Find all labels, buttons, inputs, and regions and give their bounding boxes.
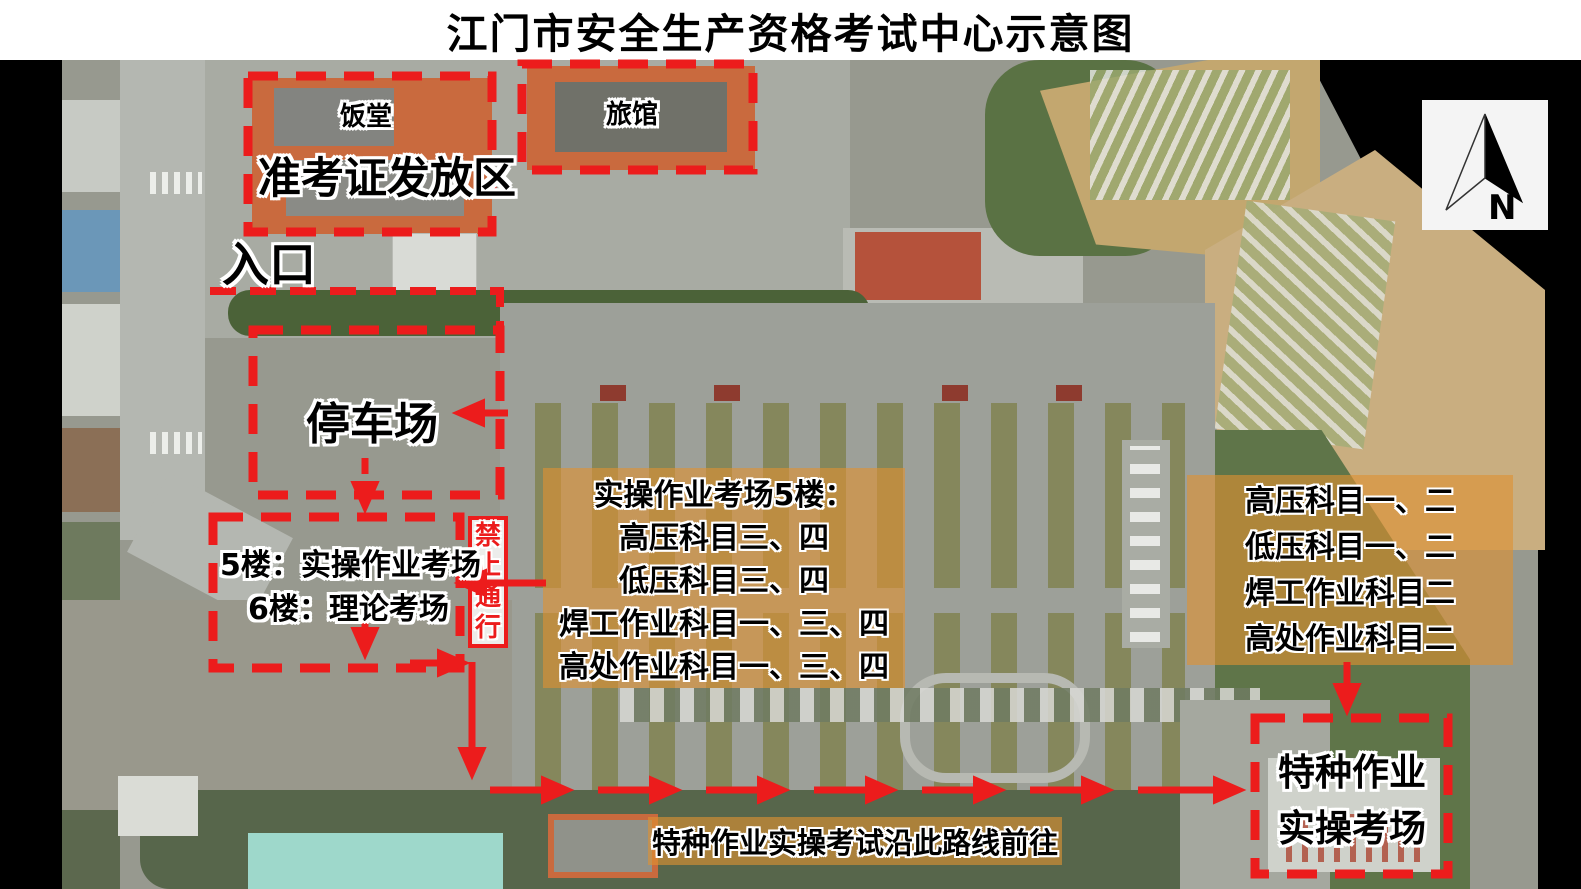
board-line: 焊工作业科目二	[1187, 571, 1513, 617]
map-schematic: 江门市安全生产资格考试中心示意图	[0, 0, 1581, 889]
compass-north-label: N	[1488, 188, 1516, 228]
pond	[248, 833, 503, 889]
photo-feature	[1090, 70, 1290, 200]
board-line: 实操作业考场5楼：	[543, 474, 905, 517]
photo-feature	[1215, 201, 1396, 450]
right-info-board: 高压科目一、二 低压科目一、二 焊工作业科目二 高处作业科目二	[1187, 475, 1513, 665]
label-canteen: 饭堂	[340, 96, 392, 133]
board-line: 低压科目一、二	[1187, 525, 1513, 571]
label-ticket-issue-area: 准考证发放区	[258, 144, 516, 206]
label-entrance: 入口	[222, 226, 316, 295]
photo-feature	[855, 232, 981, 300]
label-parking: 停车场	[306, 388, 438, 452]
title-bar: 江门市安全生产资格考试中心示意图	[0, 0, 1581, 60]
photo-feature	[120, 60, 205, 540]
photo-feature	[942, 385, 968, 401]
photo-feature	[548, 814, 658, 878]
photo-feature	[150, 172, 202, 194]
photo-feature	[62, 210, 120, 292]
board-line: 高压科目三、四	[543, 517, 905, 560]
route-note-text: 特种作业实操考试沿此路线前往	[652, 820, 1058, 862]
board-line: 高处作业科目二	[1187, 617, 1513, 663]
photo-feature	[62, 304, 120, 416]
photo-feature	[1130, 446, 1160, 642]
board-line: 焊工作业科目一、三、四	[543, 603, 905, 646]
page-title: 江门市安全生产资格考试中心示意图	[447, 0, 1135, 60]
route-note-strip: 特种作业实操考试沿此路线前往	[648, 817, 1062, 865]
photo-feature	[620, 688, 1260, 722]
photo-feature	[1056, 385, 1082, 401]
compass: N	[1422, 100, 1548, 230]
label-special-site-line2: 实操考场	[1268, 798, 1436, 852]
photo-feature	[0, 60, 62, 889]
photo-feature	[714, 385, 740, 401]
label-exam-building-f5: 5楼：实操作业考场	[220, 540, 481, 584]
label-exam-building-f6: 6楼：理论考场	[248, 584, 449, 628]
board-line: 高处作业科目一、三、四	[543, 646, 905, 689]
photo-feature	[118, 776, 198, 836]
board-line: 低压科目三、四	[543, 560, 905, 603]
entrance-canopy	[392, 233, 477, 295]
photo-feature	[62, 100, 120, 192]
photo-feature	[62, 428, 120, 512]
label-hotel: 旅馆	[606, 94, 658, 131]
north-arrow-icon	[1422, 100, 1548, 230]
center-info-board: 实操作业考场5楼： 高压科目三、四 低压科目三、四 焊工作业科目一、三、四 高处…	[543, 468, 905, 688]
board-line: 高压科目一、二	[1187, 479, 1513, 525]
photo-feature	[150, 432, 202, 454]
photo-feature	[600, 385, 626, 401]
label-special-site-line1: 特种作业	[1268, 742, 1436, 796]
